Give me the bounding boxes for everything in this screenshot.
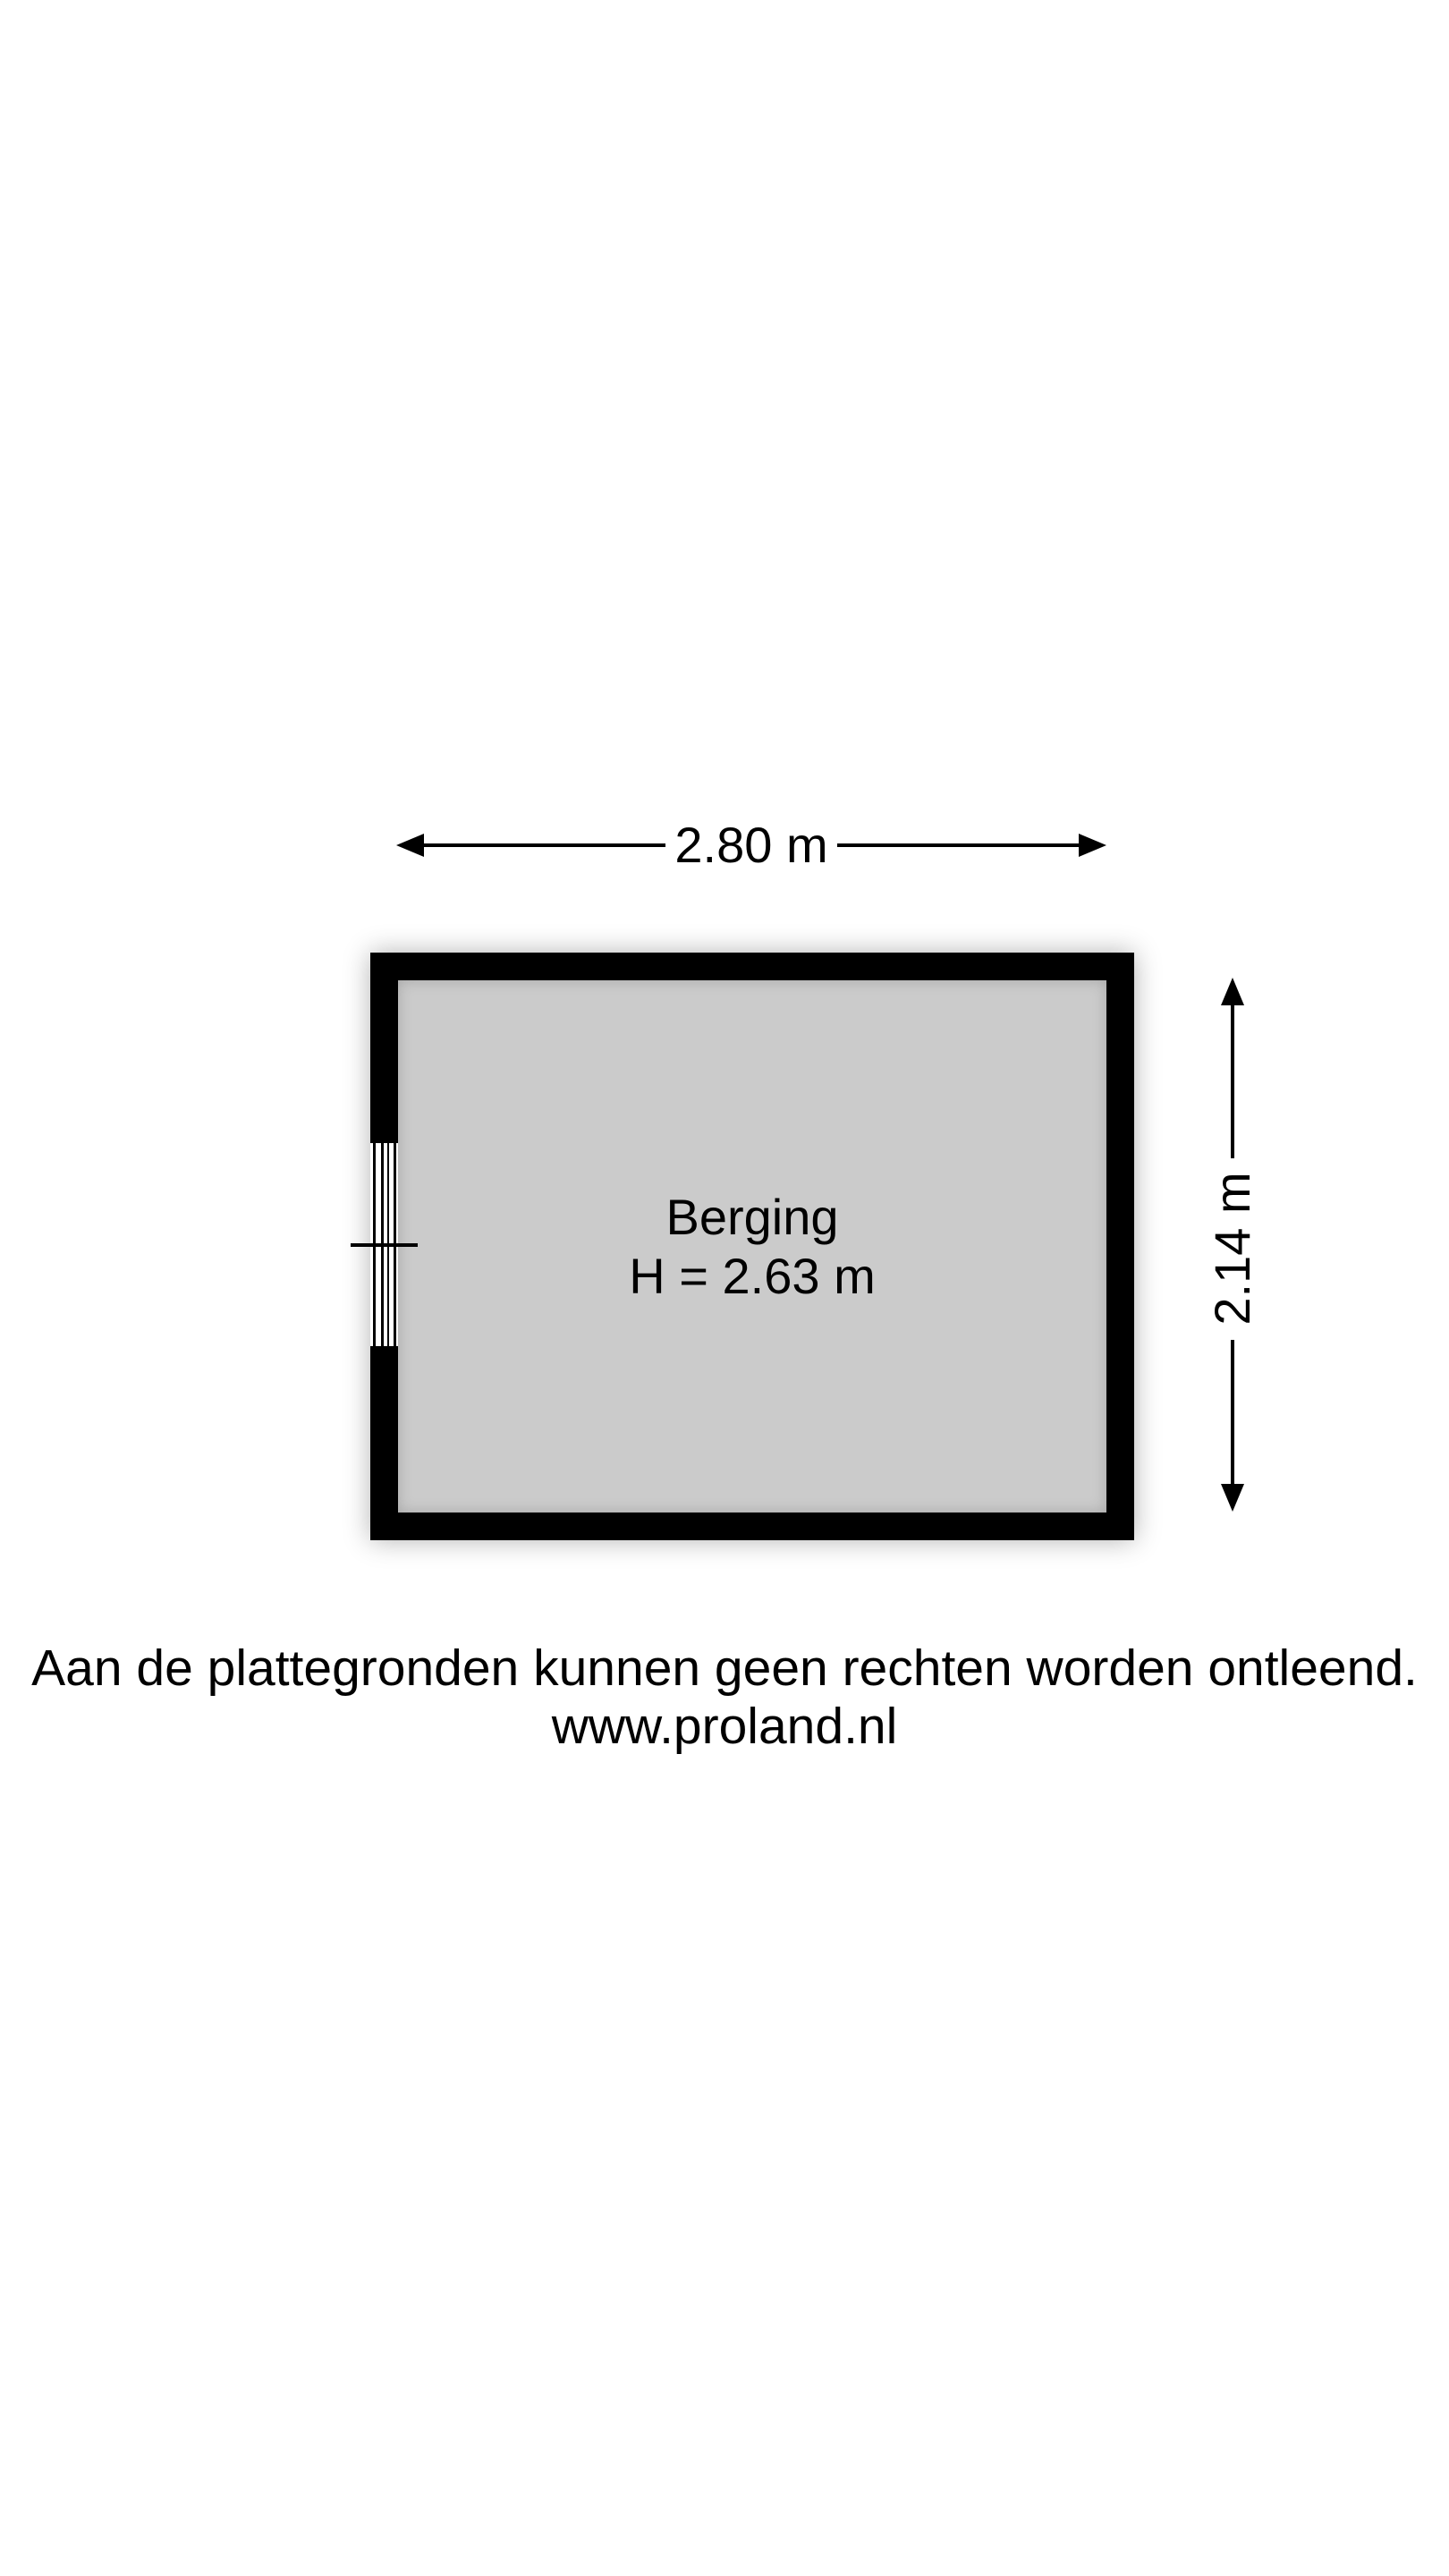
- floorplan-page: 2.80 m Berging H = 2.63 m 2.14 m Aan de …: [0, 0, 1449, 2576]
- disclaimer-text: Aan de plattegronden kunnen geen rechten…: [0, 1640, 1449, 1698]
- dimension-line-vertical-top: [1231, 1000, 1234, 1158]
- dimension-line-horizontal-right: [837, 843, 1083, 847]
- dimension-arrow-down-icon: [1221, 1484, 1244, 1512]
- room-label-block: Berging H = 2.63 m: [629, 1188, 875, 1306]
- disclaimer-block: Aan de plattegronden kunnen geen rechten…: [0, 1640, 1449, 1756]
- window-center-tick: [351, 1243, 418, 1247]
- dimension-line-horizontal-left: [419, 843, 665, 847]
- dimension-line-vertical-bottom: [1231, 1340, 1234, 1497]
- room-width-dimension-label: 2.80 m: [644, 818, 859, 872]
- room-floor: Berging H = 2.63 m: [398, 980, 1106, 1513]
- dimension-arrow-right-icon: [1079, 834, 1106, 857]
- room-name-label: Berging: [629, 1188, 875, 1247]
- room-ceiling-height-label: H = 2.63 m: [629, 1247, 875, 1306]
- disclaimer-website: www.proland.nl: [0, 1698, 1449, 1756]
- room-depth-dimension-label: 2.14 m: [1206, 1141, 1259, 1356]
- room-walls: Berging H = 2.63 m: [370, 953, 1134, 1540]
